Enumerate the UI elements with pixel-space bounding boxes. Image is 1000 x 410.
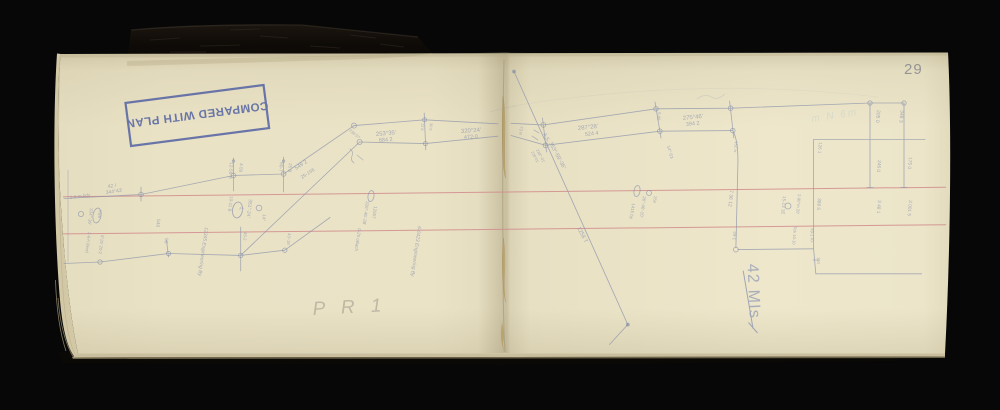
svg-text:59-1: 59-1 xyxy=(809,228,815,237)
svg-text:5-06: 5-06 xyxy=(656,112,662,121)
svg-text:540: 540 xyxy=(154,219,161,228)
svg-text:388 5: 388 5 xyxy=(815,198,822,211)
svg-text:472-0: 472-0 xyxy=(464,134,478,141)
svg-text:175 0: 175 0 xyxy=(906,157,913,170)
svg-text:205 0: 205 0 xyxy=(874,110,881,123)
svg-text:39-1: 39-1 xyxy=(732,231,738,241)
svg-text:25 B: 25 B xyxy=(287,163,293,173)
svg-text:12 8: 12 8 xyxy=(420,123,425,131)
svg-text:126 1: 126 1 xyxy=(817,142,823,154)
svg-text:3 48 1: 3 48 1 xyxy=(875,200,882,214)
svg-text:30 5: 30 5 xyxy=(428,123,433,131)
svg-text:P R 1: P R 1 xyxy=(312,295,387,320)
svg-text:110: 110 xyxy=(816,257,822,265)
svg-text:29: 29 xyxy=(904,61,923,78)
svg-text:60-7: 60-7 xyxy=(277,162,284,172)
svg-text:50: 50 xyxy=(163,238,169,244)
svg-text:73 w: 73 w xyxy=(518,126,524,136)
svg-text:45-2: 45-2 xyxy=(242,232,248,241)
svg-text:152 w: 152 w xyxy=(733,141,739,154)
svg-text:4-50: 4-50 xyxy=(238,163,244,173)
svg-text:14°: 14° xyxy=(261,214,267,222)
svg-text:348 3: 348 3 xyxy=(897,110,904,123)
svg-text:684 2: 684 2 xyxy=(379,137,393,144)
svg-text:246 0: 246 0 xyxy=(875,160,882,173)
